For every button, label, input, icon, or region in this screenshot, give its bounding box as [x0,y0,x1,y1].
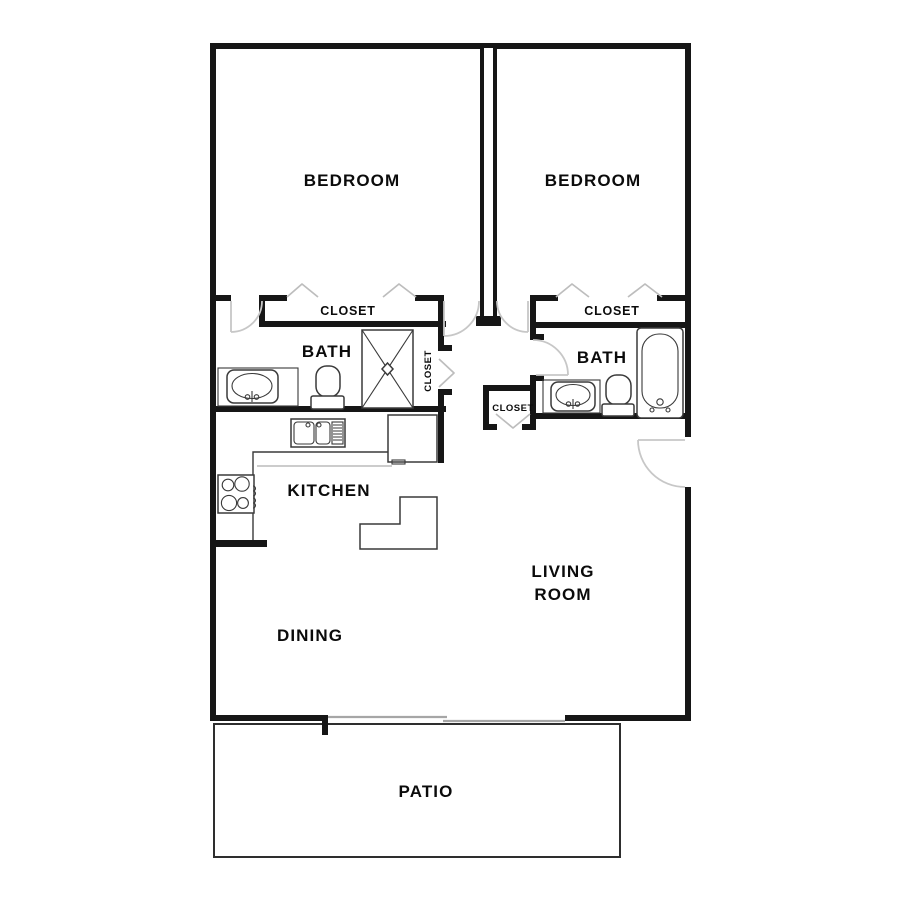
bedroom-right-hall-door-swing [497,301,528,332]
toilet-right-fixture [602,375,634,416]
patio-label: PATIO [399,782,454,801]
wall-top [210,43,691,49]
door-arc [497,301,528,332]
dining-label: DINING [277,626,343,645]
wall-left [210,43,216,721]
bath-right-door-swing [533,340,568,375]
closet-left-label: CLOSET [320,304,376,318]
bedroom-left-hall-door-swing [444,301,479,336]
wall-segment [530,322,691,328]
door-arc [231,301,262,332]
wall-bottom-left [210,715,328,721]
wall-segment [483,385,536,391]
door-arc [444,301,479,336]
bifold-door-icon [628,284,662,297]
refrigerator-fixture [388,415,437,464]
refrigerator-body [388,415,437,462]
living-room-label-line1: LIVING [531,562,594,581]
wall-segment [530,334,544,340]
entry-door-swing [638,440,685,487]
wall-bottom-right [565,715,691,721]
bathtub-fixture [637,328,683,418]
range-fixture [218,475,256,513]
sliding-glass-door [328,717,565,721]
bedroom-right-label: BEDROOM [545,171,641,190]
closet-right-label: CLOSET [584,304,640,318]
wall-segment [530,413,536,430]
divider-wall-foot [476,316,501,326]
bedroom-left-label: BEDROOM [304,171,400,190]
wall-segment [444,389,452,395]
toilet-tank [602,404,634,416]
wall-segment [259,321,446,327]
kitchen-label: KITCHEN [287,481,370,500]
bedroom-divider-wall [476,46,501,326]
floor-plan-drawing: BEDROOM BEDROOM CLOSET CLOSET BATH BATH … [0,0,900,900]
vanity-sink-right-fixture [543,380,600,413]
living-room-label-line2: ROOM [534,585,591,604]
kitchen-sink-fixture [291,419,345,447]
bifold-door-icon [383,284,416,297]
floor-plan-page: BEDROOM BEDROOM CLOSET CLOSET BATH BATH … [0,0,900,900]
wall-right-upper [685,43,691,437]
bath-left-door-swing [231,301,262,332]
toilet-left-fixture [311,366,344,409]
bath-right-label: BATH [577,348,627,367]
toilet-bowl [316,366,340,397]
island-counter [360,497,437,549]
toilet-tank [311,396,344,409]
wall-right-lower [685,487,691,721]
divider-wall-body [482,46,495,318]
interior-walls [210,295,691,547]
hall-linen-closet-label: CLOSET [423,350,434,392]
tub-outline [637,328,683,418]
door-arc [638,440,685,487]
bifold-door-icon [287,284,318,297]
wall-segment [438,389,444,463]
bifold-door-icon [439,359,454,387]
wall-segment [210,295,231,301]
wall-bottom-left-return [322,715,328,735]
wall-segment [657,295,691,301]
kitchen-island [360,497,437,549]
bath-left-label: BATH [302,342,352,361]
room-labels: BEDROOM BEDROOM CLOSET CLOSET BATH BATH … [277,171,641,801]
door-arc [533,340,568,375]
wall-segment [444,345,452,351]
vanity-sink-left-fixture [218,368,298,406]
entry-closet-label: CLOSET [492,403,534,414]
shower-fixture [362,330,413,408]
wall-segment [210,540,267,547]
hall-linen-closet-label-group: CLOSET [423,350,434,392]
wall-segment [483,424,497,430]
wall-segment [483,385,489,430]
toilet-bowl [606,375,631,405]
bifold-door-icon [556,284,589,297]
